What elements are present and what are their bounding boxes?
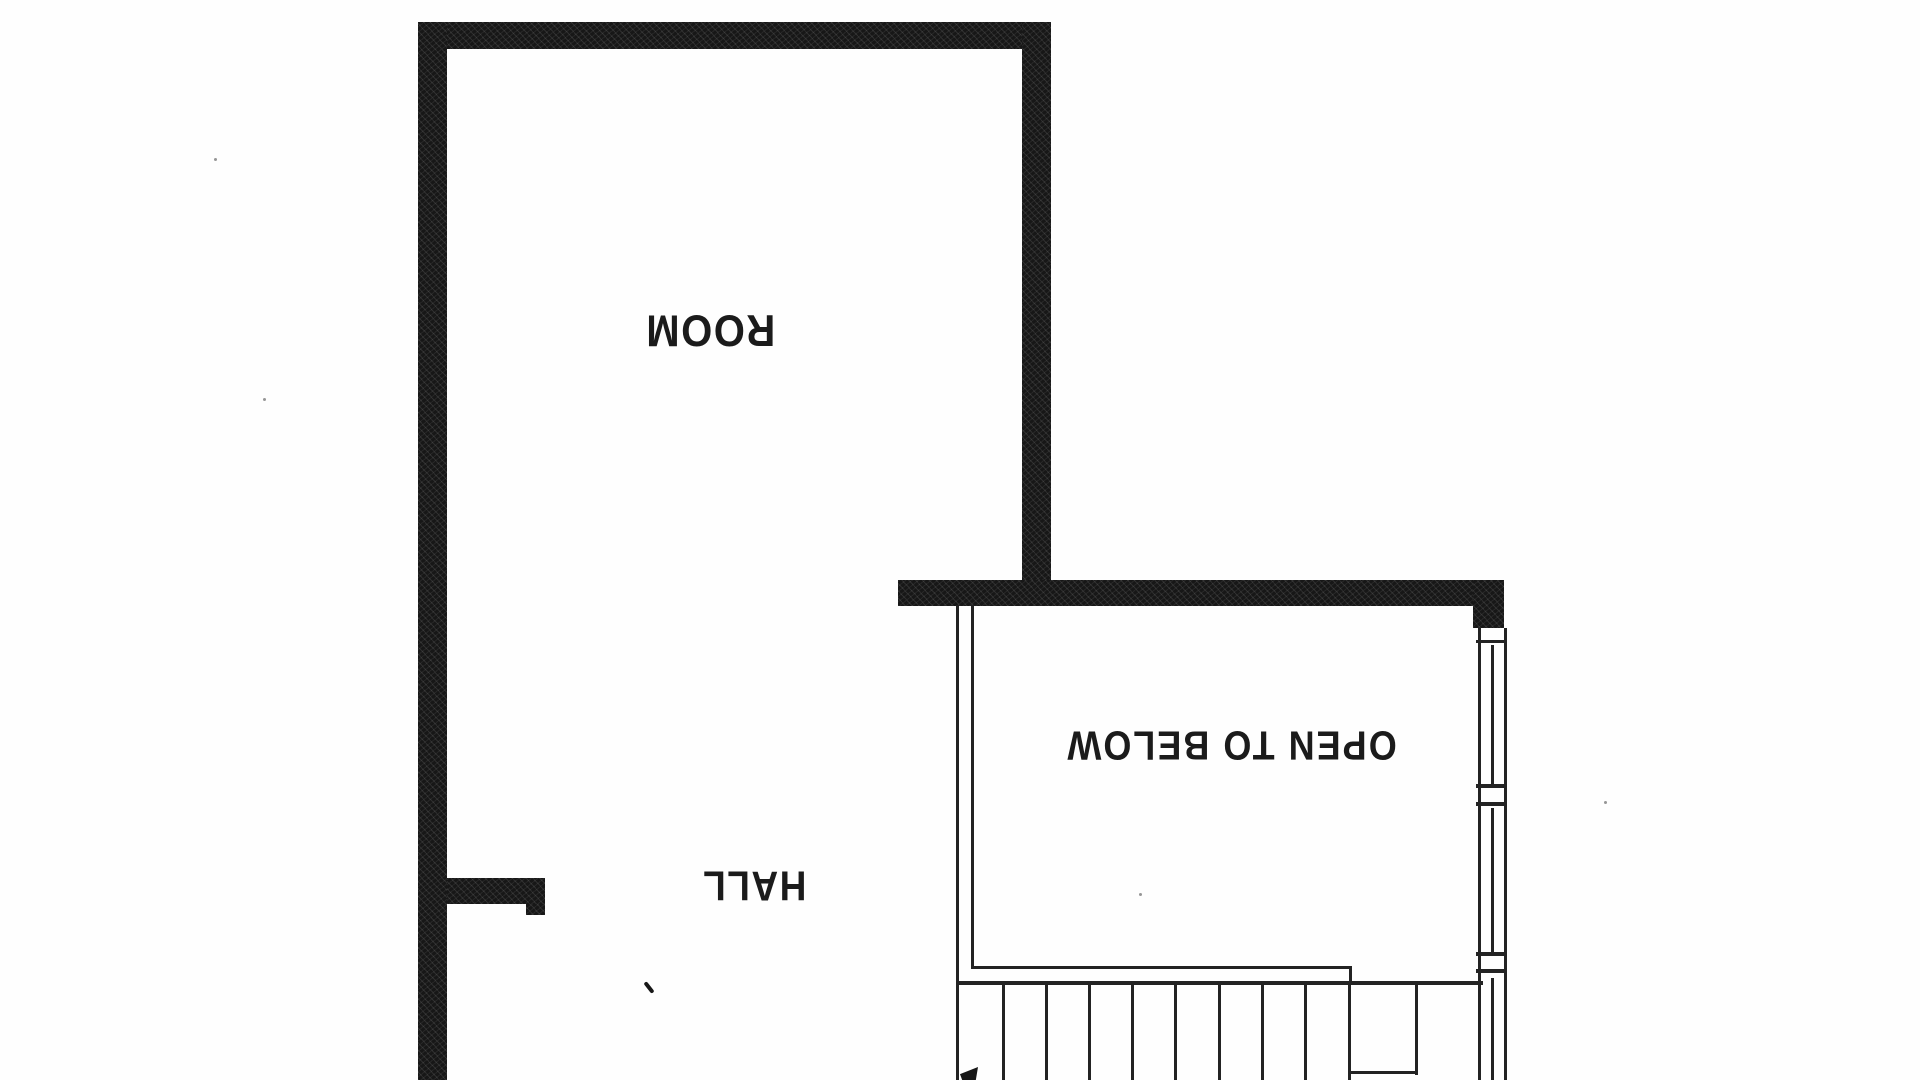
stair-riser <box>1261 985 1264 1080</box>
hall-label: HALL <box>654 861 854 908</box>
window-wall-bar <box>1476 969 1507 973</box>
room-label: ROOM <box>610 304 810 354</box>
window-wall-bar <box>1476 784 1507 788</box>
stair-riser <box>1131 985 1134 1080</box>
window-wall-left-line <box>1478 628 1481 1080</box>
hall-door-jamb-wall <box>447 878 545 904</box>
scan-speck <box>263 398 266 401</box>
scan-speck <box>1604 801 1607 804</box>
stair-riser <box>1218 985 1221 1080</box>
window-wall-bar <box>1476 640 1507 643</box>
hall-door-jamb-end <box>526 904 545 915</box>
room-left-wall <box>418 22 447 1080</box>
window-wall-mid-line <box>1491 808 1494 953</box>
stair-riser <box>1045 985 1048 1080</box>
open-below-left-wall-inner <box>971 605 974 969</box>
scan-speck <box>214 158 217 161</box>
stair-landing-edge <box>1350 1071 1418 1074</box>
window-wall-mid-line <box>1491 645 1494 785</box>
stair-riser <box>1348 985 1351 1080</box>
window-wall-mid-line <box>1491 978 1494 1080</box>
room-top-wall <box>418 22 1048 49</box>
scan-speck <box>1139 893 1142 896</box>
open-below-bottom-line <box>971 966 1352 969</box>
open-to-below-label: OPEN TO BELOW <box>1031 721 1431 768</box>
floor-plan: ROOM HALL OPEN TO BELOW <box>0 0 1920 1080</box>
open-below-corner-block <box>1473 580 1504 628</box>
window-wall-right-line <box>1504 628 1507 1080</box>
pencil-tick-mark <box>643 981 654 994</box>
stair-riser <box>1088 985 1091 1080</box>
open-below-top-wall <box>898 580 1504 606</box>
stair-riser <box>1002 985 1005 1080</box>
stair-riser <box>1304 985 1307 1080</box>
stair-direction-arrow-icon <box>960 1067 978 1080</box>
window-wall-bar <box>1476 802 1507 806</box>
stair-riser <box>1174 985 1177 1080</box>
stair-landing-riser <box>1415 985 1418 1075</box>
open-below-left-wall-outer <box>956 605 959 1080</box>
room-right-wall <box>1022 22 1051 584</box>
window-wall-bar <box>1476 952 1507 956</box>
